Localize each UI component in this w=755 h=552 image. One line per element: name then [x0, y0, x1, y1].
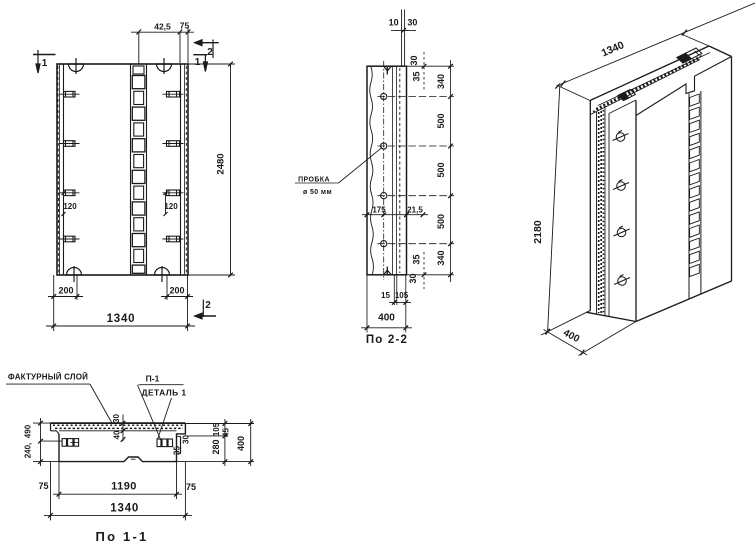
svg-text:500: 500: [436, 113, 446, 128]
svg-text:120: 120: [164, 202, 178, 211]
svg-text:2: 2: [205, 300, 211, 311]
svg-text:200: 200: [58, 286, 73, 296]
svg-text:240,: 240,: [24, 443, 33, 459]
svg-text:15: 15: [381, 291, 390, 300]
svg-text:2480: 2480: [216, 153, 227, 174]
svg-text:30: 30: [112, 414, 121, 423]
svg-text:2: 2: [207, 47, 213, 58]
svg-text:30: 30: [182, 435, 191, 444]
svg-text:75: 75: [180, 21, 190, 31]
svg-text:490: 490: [24, 424, 33, 438]
svg-text:40: 40: [113, 430, 122, 439]
svg-text:ФАКТУРНЫЙ СЛОЙ: ФАКТУРНЫЙ СЛОЙ: [8, 373, 88, 382]
svg-text:400: 400: [378, 313, 395, 324]
svg-text:120: 120: [63, 202, 77, 211]
svg-text:По 1-1: По 1-1: [96, 529, 149, 544]
svg-text:1340: 1340: [107, 313, 136, 325]
svg-text:По 2-2: По 2-2: [366, 334, 408, 346]
svg-text:340: 340: [436, 250, 446, 265]
svg-text:П-1: П-1: [146, 374, 160, 384]
svg-text:75: 75: [38, 481, 48, 491]
svg-text:35: 35: [412, 254, 422, 264]
svg-text:200: 200: [169, 286, 184, 296]
svg-text:500: 500: [436, 162, 446, 177]
svg-text:42,5: 42,5: [154, 22, 171, 32]
svg-text:ДЕТАЛЬ 1: ДЕТАЛЬ 1: [142, 388, 187, 398]
svg-text:105: 105: [212, 422, 221, 436]
svg-text:21,5: 21,5: [407, 206, 423, 215]
svg-text:35: 35: [412, 71, 422, 81]
svg-text:1340: 1340: [110, 503, 139, 515]
svg-text:35: 35: [173, 446, 182, 455]
svg-text:75: 75: [186, 482, 196, 492]
svg-text:500: 500: [436, 214, 446, 229]
svg-text:30: 30: [407, 18, 417, 28]
svg-text:ПРОБКА: ПРОБКА: [298, 177, 330, 184]
svg-text:45: 45: [222, 428, 231, 437]
svg-text:340: 340: [436, 74, 446, 89]
svg-text:30: 30: [408, 273, 418, 283]
svg-text:1: 1: [42, 58, 48, 69]
svg-text:10: 10: [389, 18, 399, 28]
svg-text:400: 400: [236, 436, 246, 451]
svg-text:ø 50 мм: ø 50 мм: [303, 189, 332, 196]
svg-text:1190: 1190: [111, 481, 137, 493]
svg-text:175: 175: [372, 206, 386, 215]
svg-text:2180: 2180: [532, 220, 544, 244]
svg-text:30: 30: [409, 55, 419, 65]
svg-text:280: 280: [211, 439, 221, 454]
svg-text:1: 1: [195, 57, 201, 68]
svg-text:105: 105: [395, 291, 409, 300]
